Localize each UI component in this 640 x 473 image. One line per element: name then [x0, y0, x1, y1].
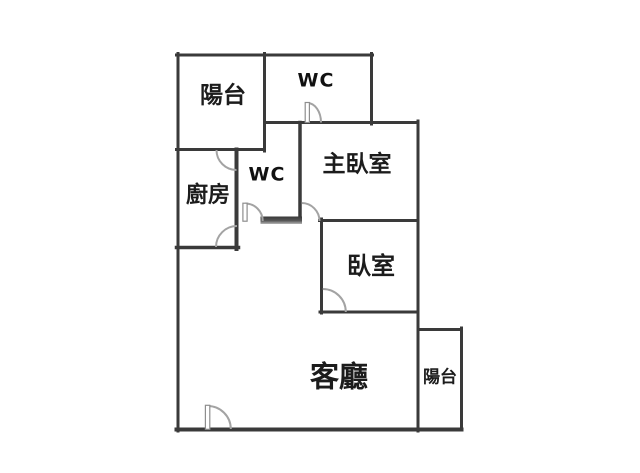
door-leaf-entry [205, 405, 209, 429]
room-label-balcony-right: 陽台 [423, 370, 457, 387]
wall-wc2-bottom-bar [261, 217, 303, 225]
room-label-bedroom: 臥室 [347, 254, 395, 278]
door-leaves [205, 103, 309, 430]
room-label-balcony-top: 陽台 [200, 85, 246, 108]
room-label-living-room: 客廳 [310, 363, 368, 392]
door-arc-master-bedroom [302, 203, 320, 221]
room-label-toilet-inner: WC [249, 166, 286, 185]
door-arc-kitchen-top [217, 150, 237, 170]
door-leaf-wc-inner [243, 203, 247, 221]
floorplan: 陽台 WC 廚房 WC 主臥室 臥室 客廳 陽台 [0, 0, 640, 473]
door-arc-entry [208, 406, 231, 429]
room-label-master-bedroom: 主臥室 [323, 154, 392, 177]
room-label-kitchen: 廚房 [186, 185, 230, 207]
room-label-toilet-top: WC [298, 72, 335, 91]
door-arc-wc-inner [245, 204, 263, 222]
door-arc-bedroom [323, 289, 346, 312]
door-leaf-wc-top [305, 103, 309, 123]
door-arc-kitchen-bottom [216, 226, 237, 247]
